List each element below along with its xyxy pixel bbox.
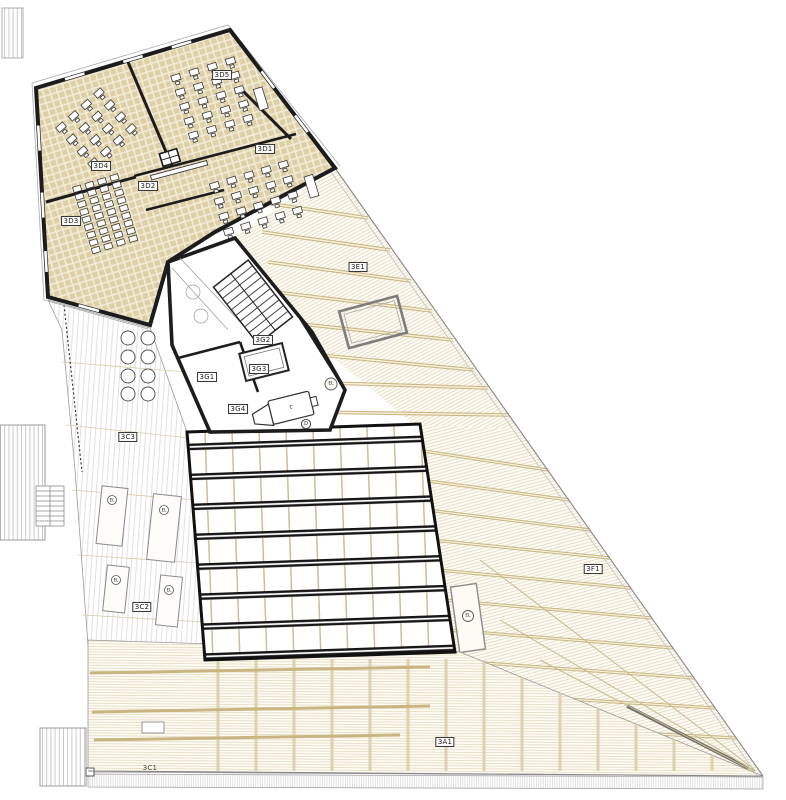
corner-post xyxy=(86,768,94,776)
room-label-3a1: 3A1 xyxy=(435,737,454,747)
round-table xyxy=(141,387,155,401)
chair xyxy=(220,99,225,103)
room-label-3g1: 3G1 xyxy=(197,372,217,382)
ribbed-roof-body xyxy=(187,424,455,660)
round-table xyxy=(121,331,135,345)
chair xyxy=(245,230,250,234)
chair xyxy=(248,178,253,182)
chair xyxy=(193,76,198,80)
drain-label-3: EL xyxy=(110,498,115,503)
chair xyxy=(287,183,292,187)
chair xyxy=(193,138,198,142)
central-ribbed-roof xyxy=(187,424,455,660)
door-marker-label: D xyxy=(304,421,308,427)
round-table xyxy=(121,369,135,383)
chair xyxy=(230,64,235,68)
chair xyxy=(211,133,216,137)
chair xyxy=(198,90,203,94)
room-label-3g2: 3G2 xyxy=(253,335,273,345)
room-label-3c1: 3C1 xyxy=(141,764,158,772)
bottom-tick-strip xyxy=(88,774,763,789)
room-label-3d1: 3D1 xyxy=(255,144,275,154)
chair xyxy=(243,107,248,111)
neighbour-building-top-left xyxy=(2,8,23,58)
round-table xyxy=(121,387,135,401)
neighbour-building-bottom-left xyxy=(40,728,86,786)
chair xyxy=(180,95,185,99)
chair xyxy=(262,224,267,228)
chair xyxy=(229,127,234,131)
chair xyxy=(188,124,193,128)
room-label-3g3: 3G3 xyxy=(249,364,269,374)
chair xyxy=(214,189,219,193)
chair xyxy=(297,214,302,218)
chair xyxy=(275,204,280,208)
floor-plan-canvas: 3D5 3D1 3D4 3D2 3D3 3E1 3G2 3G1 3G3 3G4 … xyxy=(0,0,786,800)
room-label-3c2: 3C2 xyxy=(132,602,151,612)
chair xyxy=(253,194,258,198)
drain-label-2: EL xyxy=(465,614,470,619)
room-label-3f1: 3F1 xyxy=(584,564,603,574)
chair xyxy=(219,204,224,208)
chair xyxy=(247,122,252,126)
chair xyxy=(283,168,288,172)
drain-label-4: EL xyxy=(162,508,167,513)
chair xyxy=(234,79,239,83)
round-table xyxy=(141,369,155,383)
drain-label-1: EL xyxy=(328,382,333,387)
chair xyxy=(225,113,230,117)
room-label-3c3: 3C3 xyxy=(118,432,137,442)
chair xyxy=(270,189,275,193)
floor-plan-drawing xyxy=(0,0,786,800)
canopy-hatch-box xyxy=(142,722,164,733)
drain-label-5: EL xyxy=(114,578,119,583)
machine-label: c xyxy=(289,404,292,411)
chair xyxy=(207,119,212,123)
chair xyxy=(175,81,180,85)
room-label-3d2: 3D2 xyxy=(138,181,158,191)
drain-label-6: EL xyxy=(167,588,172,593)
room-label-3d5: 3D5 xyxy=(212,70,232,80)
room-label-3g4: 3G4 xyxy=(228,404,248,414)
chair xyxy=(202,104,207,108)
room-label-3e1: 3E1 xyxy=(349,262,368,272)
chair xyxy=(258,209,263,213)
chair xyxy=(280,219,285,223)
round-table xyxy=(121,350,135,364)
chair xyxy=(292,199,297,203)
chair xyxy=(223,220,228,224)
chair xyxy=(216,84,221,88)
chair xyxy=(184,110,189,114)
chair xyxy=(239,93,244,97)
chair xyxy=(236,199,241,203)
room-label-3d4: 3D4 xyxy=(91,161,111,171)
round-table xyxy=(141,350,155,364)
round-table xyxy=(141,331,155,345)
chair xyxy=(240,214,245,218)
room-label-3d3: 3D3 xyxy=(61,216,81,226)
chair xyxy=(266,173,271,177)
neighbour-stair xyxy=(36,486,64,526)
chair xyxy=(231,184,236,188)
